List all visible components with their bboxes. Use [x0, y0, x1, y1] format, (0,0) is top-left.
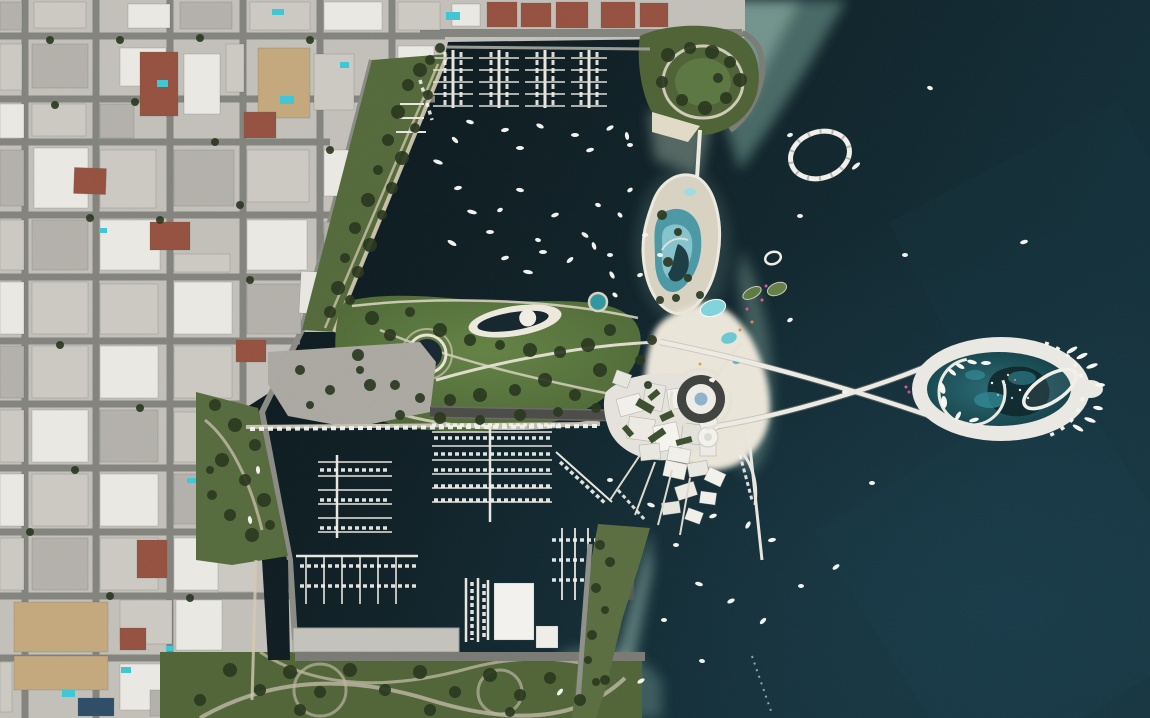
- aerial-map: [0, 0, 1150, 718]
- approach-plaza: [268, 342, 436, 428]
- aerial-map-canvas: [0, 0, 1150, 718]
- marina-shed: [293, 628, 459, 652]
- dome-oculus: [704, 433, 712, 441]
- north-seawall: [447, 47, 650, 49]
- splash-pool: [589, 293, 607, 311]
- island-pool: [684, 188, 696, 196]
- lagoon-shoal: [965, 370, 985, 380]
- roundabout-pool: [695, 393, 708, 406]
- lagoon-shoal: [1008, 371, 1036, 385]
- loop-east-landing: [1077, 380, 1103, 398]
